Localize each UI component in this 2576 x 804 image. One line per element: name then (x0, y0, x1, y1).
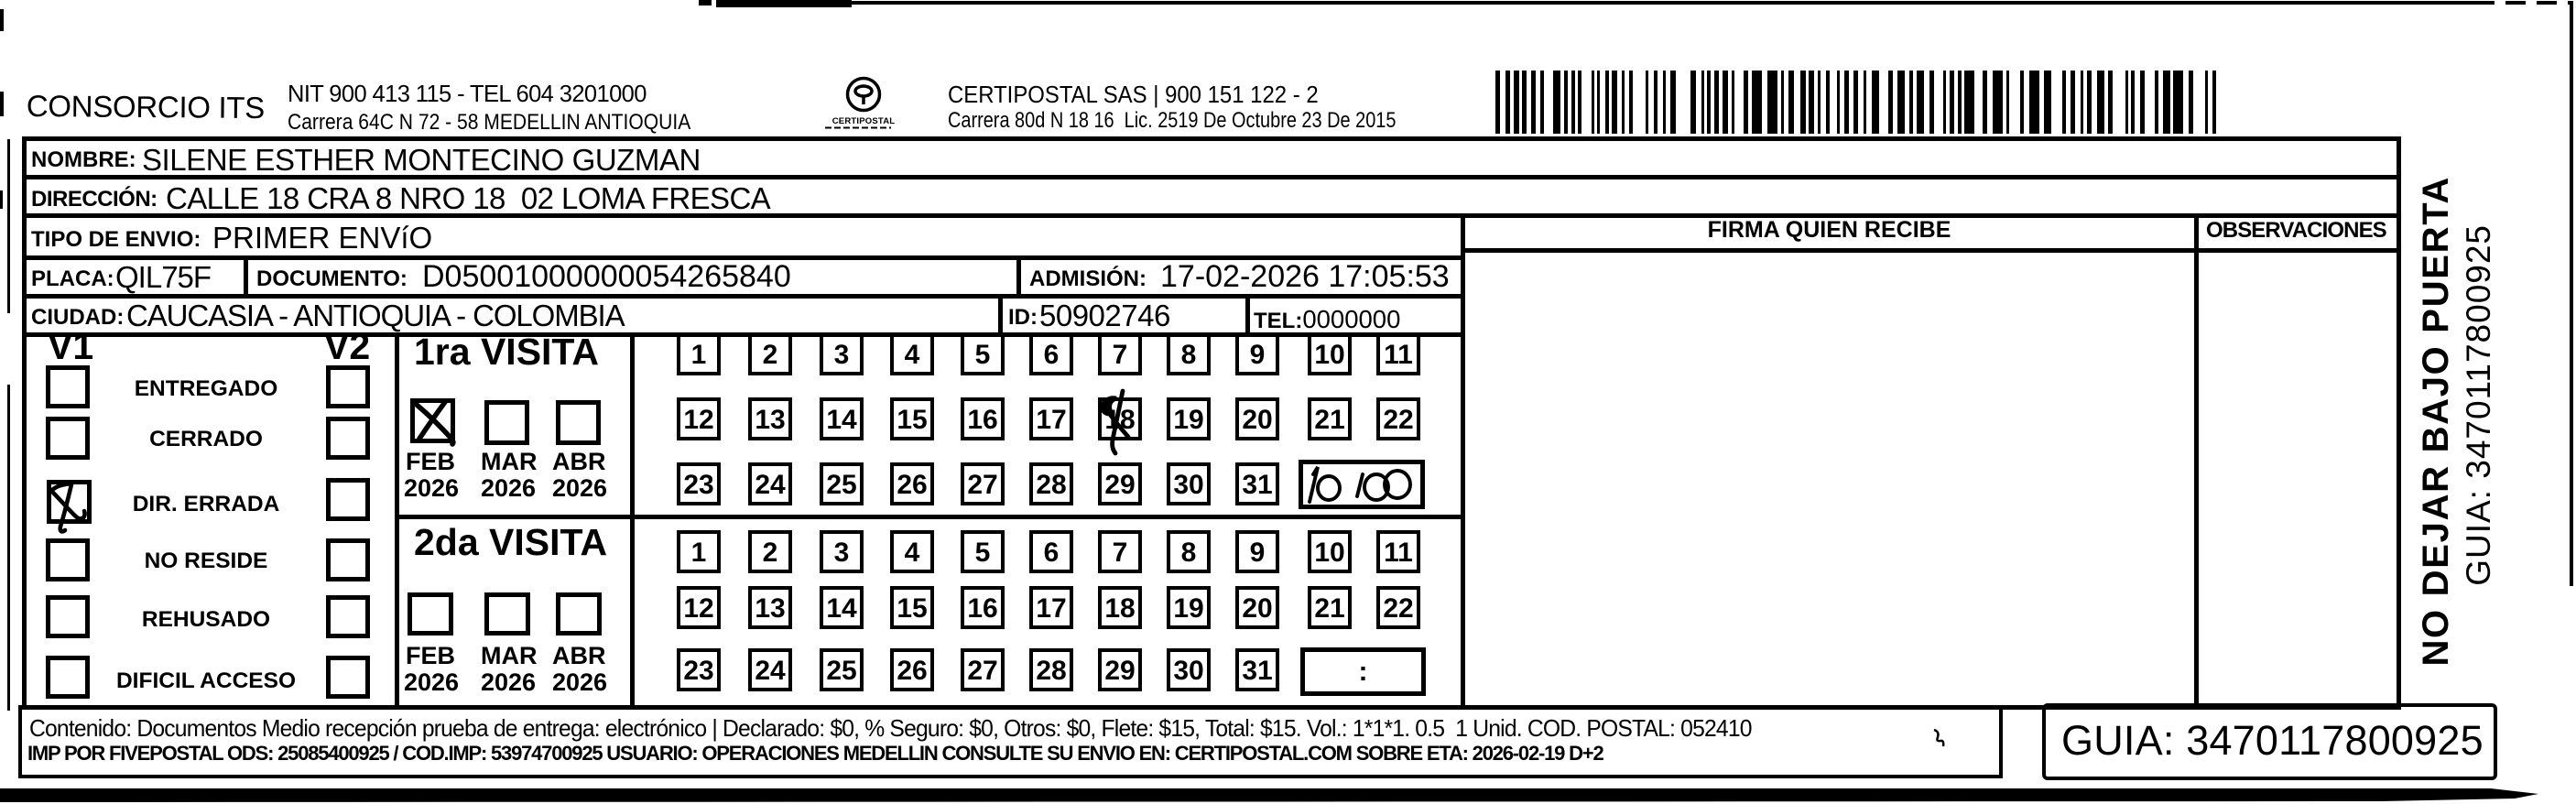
svg-text:CERTIPOSTAL: CERTIPOSTAL (832, 116, 896, 126)
